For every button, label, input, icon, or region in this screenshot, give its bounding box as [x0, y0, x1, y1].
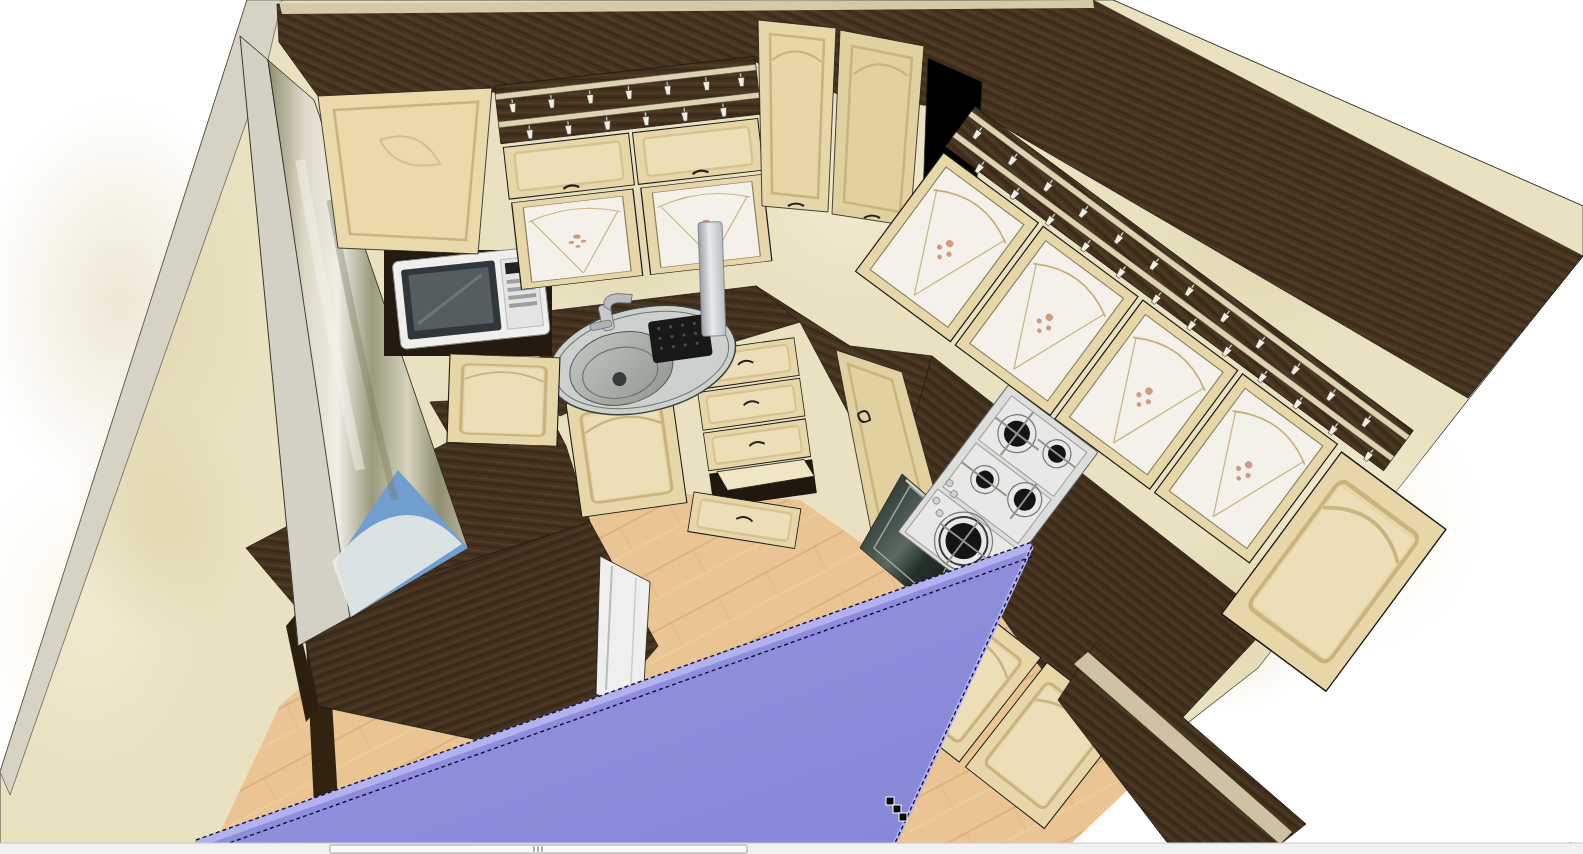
hood-chimney[interactable] [698, 222, 726, 337]
viewport-3d[interactable] [0, 0, 1583, 854]
app-window [0, 0, 1583, 854]
base-door-under-microwave[interactable] [447, 354, 560, 446]
tall-wall-cabinet-door[interactable] [318, 88, 492, 258]
scrollbar-track[interactable] [0, 843, 1583, 854]
glass-door-left-1[interactable] [512, 189, 643, 289]
horizontal-scrollbar[interactable] [0, 843, 1583, 854]
